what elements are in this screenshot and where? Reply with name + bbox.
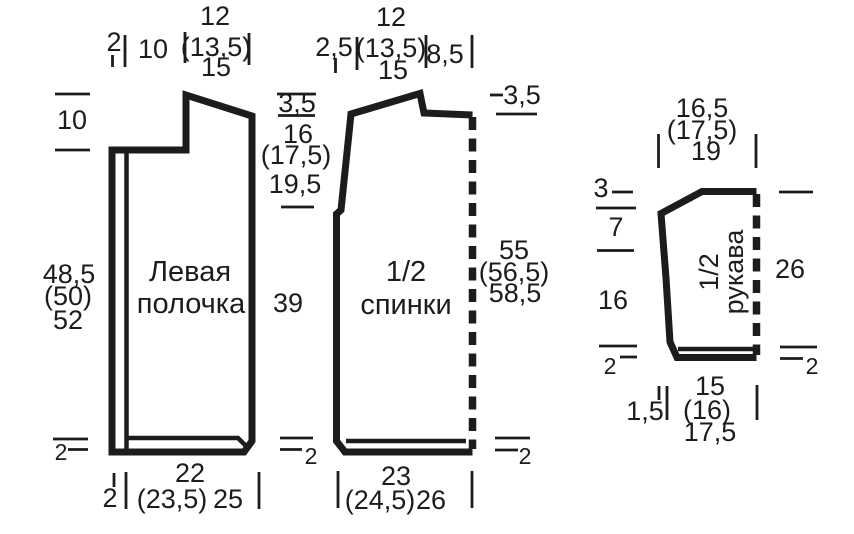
sleeve-cap-height-value: 3 [593,173,608,203]
back-shoulder-value: 15 [378,55,408,85]
back-piece-label: спинки [360,289,451,321]
shoulder-slope-value: 3,5 [278,88,316,118]
armhole-measure-column: 3,5 16 (17,5) 19,5 39 2 [261,88,332,469]
back-width-value: 26 [416,485,446,515]
sleeve-right-length-value: 26 [775,254,805,284]
front-hem-value: 2 [55,439,68,465]
sleeve-left-length-value: 16 [598,285,628,315]
sleeve-piece-label-group: 1/2 рукава [694,229,749,315]
front-bottom-band-value: 2 [102,483,117,513]
front-length-value: 52 [53,305,83,335]
pattern-diagram: 2 10 12 (13,5) 15 10 48,5 (50) 52 2 2 22… [0,0,854,534]
front-piece-label: Левая [149,256,231,288]
front-top-neck-value: 10 [138,34,168,64]
sleeve-hem-value: 2 [806,353,819,379]
front-width-value: 25 [213,484,243,514]
back-shoulder-value: 12 [376,2,406,32]
sleeve-piece-label: рукава [719,229,749,315]
sleeve-width-value: 17,5 [684,417,737,447]
front-piece: 2 10 12 (13,5) 15 10 48,5 (50) 52 2 2 22… [43,1,259,514]
back-width-value: (24,5) [345,485,416,515]
armhole-depth-value: (17,5) [261,140,332,170]
sleeve-cuff-offset-value: 1,5 [626,396,664,426]
back-piece: 2,5 12 (13,5) 15 8,5 3,5 55 (56,5) 58,5 … [315,2,549,515]
front-shoulder-value: 12 [200,1,230,31]
front-hem-inner-line [128,438,249,449]
back-length-value: 58,5 [489,278,542,308]
back-top-offset-value: 2,5 [315,32,353,62]
back-neck-value: 8,5 [426,39,464,69]
front-neck-drop-value: 10 [57,105,87,135]
sleeve-piece: 16,5 (17,5) 19 3 7 16 26 2 2 1,5 15 (16)… [593,93,818,447]
back-hem-value: 2 [519,443,532,469]
front-shoulder-value: 15 [201,52,231,82]
front-width-value: (23,5) [137,484,208,514]
back-piece-label: 1/2 [386,256,426,288]
sleeve-top-value: 19 [691,136,721,166]
front-top-band-value: 2 [106,27,121,57]
side-length-value: 39 [273,288,303,318]
sleeve-hem-value: 2 [604,353,617,379]
knitting-pattern-schematic: 2 10 12 (13,5) 15 10 48,5 (50) 52 2 2 22… [0,0,854,534]
front-piece-label: полочка [137,288,246,320]
sleeve-cap-slope-value: 7 [608,212,623,242]
armhole-depth-value: 19,5 [269,169,322,199]
hem-value: 2 [305,443,318,469]
back-neck-drop-value: 3,5 [503,80,541,110]
